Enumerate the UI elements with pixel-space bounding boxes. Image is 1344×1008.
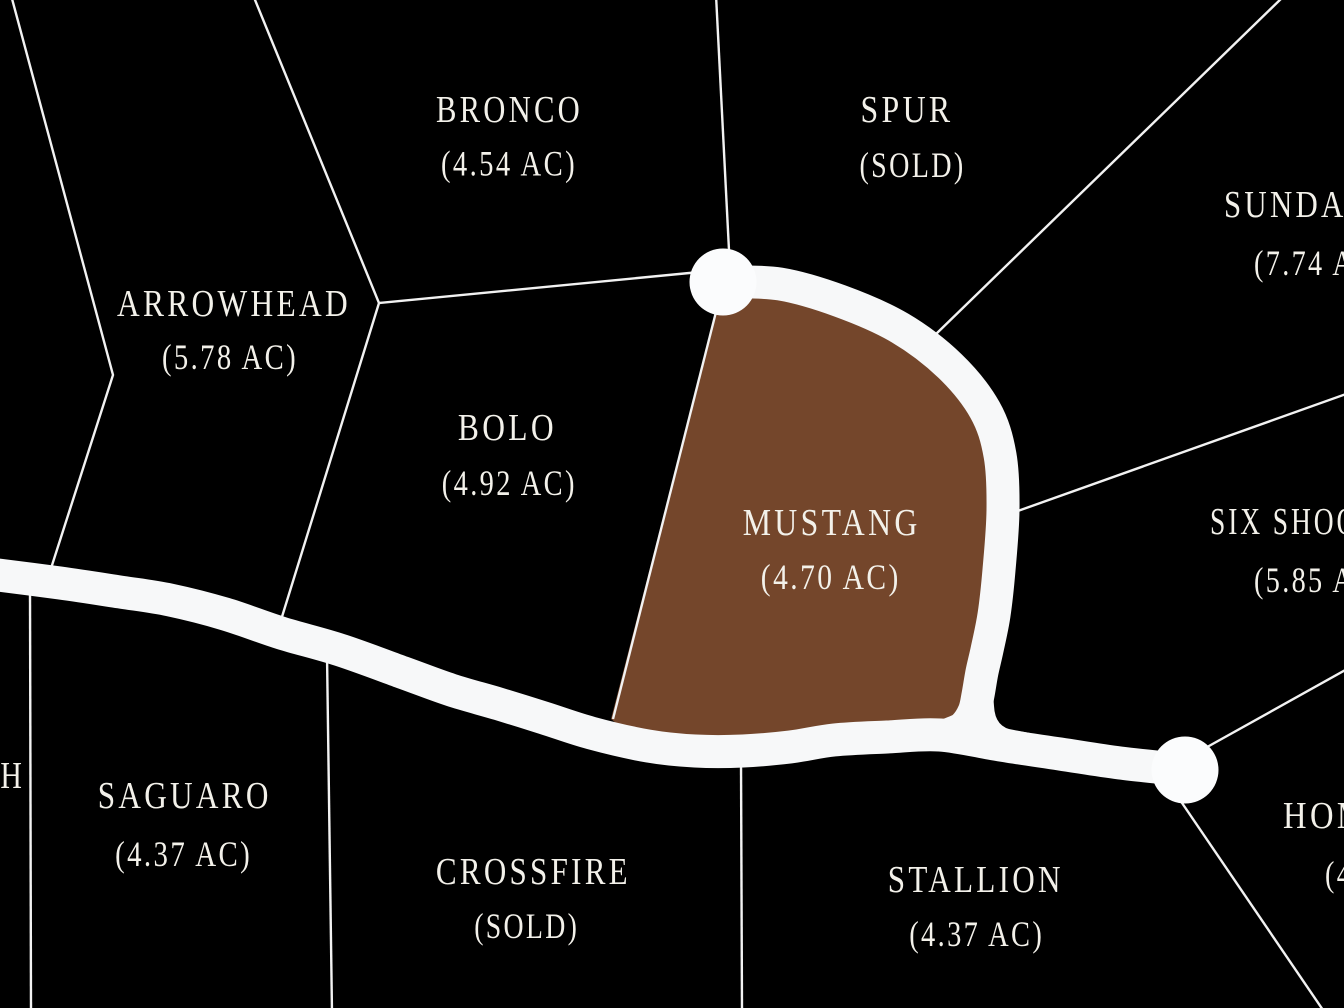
svg-text:(SOLD): (SOLD) <box>860 145 966 185</box>
svg-text:ARROWHEAD: ARROWHEAD <box>117 283 351 325</box>
svg-text:BRONCO: BRONCO <box>436 89 583 131</box>
svg-text:(4.41 AC): (4.41 AC) <box>1325 854 1344 894</box>
svg-text:(4.54 AC): (4.54 AC) <box>441 144 577 184</box>
svg-text:CROSSFIRE: CROSSFIRE <box>436 851 631 893</box>
svg-text:RANCH: RANCH <box>0 755 25 797</box>
svg-text:(7.74 AC): (7.74 AC) <box>1254 243 1344 283</box>
svg-text:HOMBRE: HOMBRE <box>1283 795 1344 837</box>
svg-text:SPUR: SPUR <box>861 89 954 131</box>
svg-text:SIX SHOOTER: SIX SHOOTER <box>1210 501 1344 543</box>
svg-text:(4.37 AC): (4.37 AC) <box>115 834 252 874</box>
svg-text:(SOLD): (SOLD) <box>474 906 579 946</box>
svg-text:(4.70 AC): (4.70 AC) <box>761 557 901 597</box>
svg-text:(5.78 AC): (5.78 AC) <box>162 337 298 377</box>
svg-text:SAGUARO: SAGUARO <box>98 775 272 817</box>
svg-text:BOLO: BOLO <box>458 407 557 449</box>
svg-text:(4.37 AC): (4.37 AC) <box>909 914 1044 954</box>
svg-text:(5.85 AC): (5.85 AC) <box>1254 560 1344 600</box>
svg-text:SUNDANCE: SUNDANCE <box>1224 184 1344 226</box>
svg-text:(4.92 AC): (4.92 AC) <box>442 463 577 503</box>
svg-text:STALLION: STALLION <box>888 859 1064 901</box>
svg-text:MUSTANG: MUSTANG <box>743 502 921 544</box>
